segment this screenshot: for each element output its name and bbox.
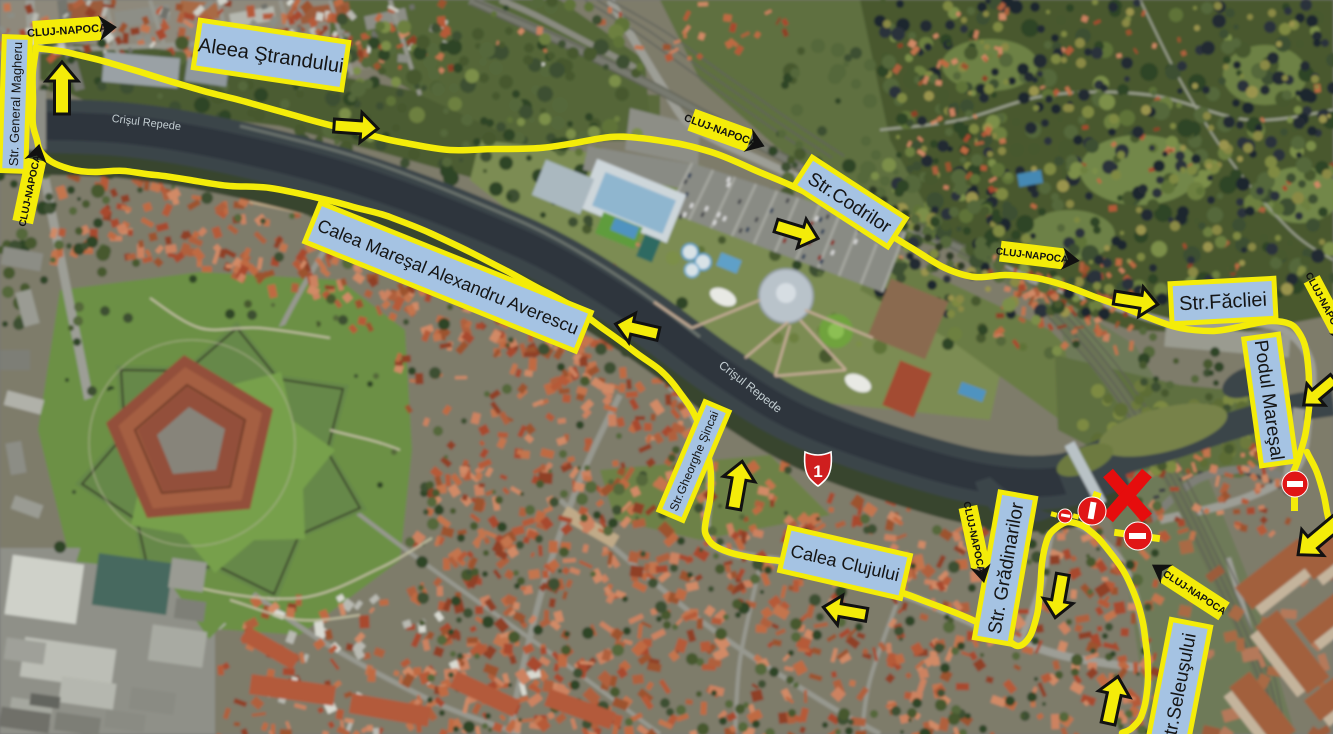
svg-text:Str.Făcliei: Str.Făcliei xyxy=(1179,289,1268,316)
svg-text:1: 1 xyxy=(813,462,822,481)
